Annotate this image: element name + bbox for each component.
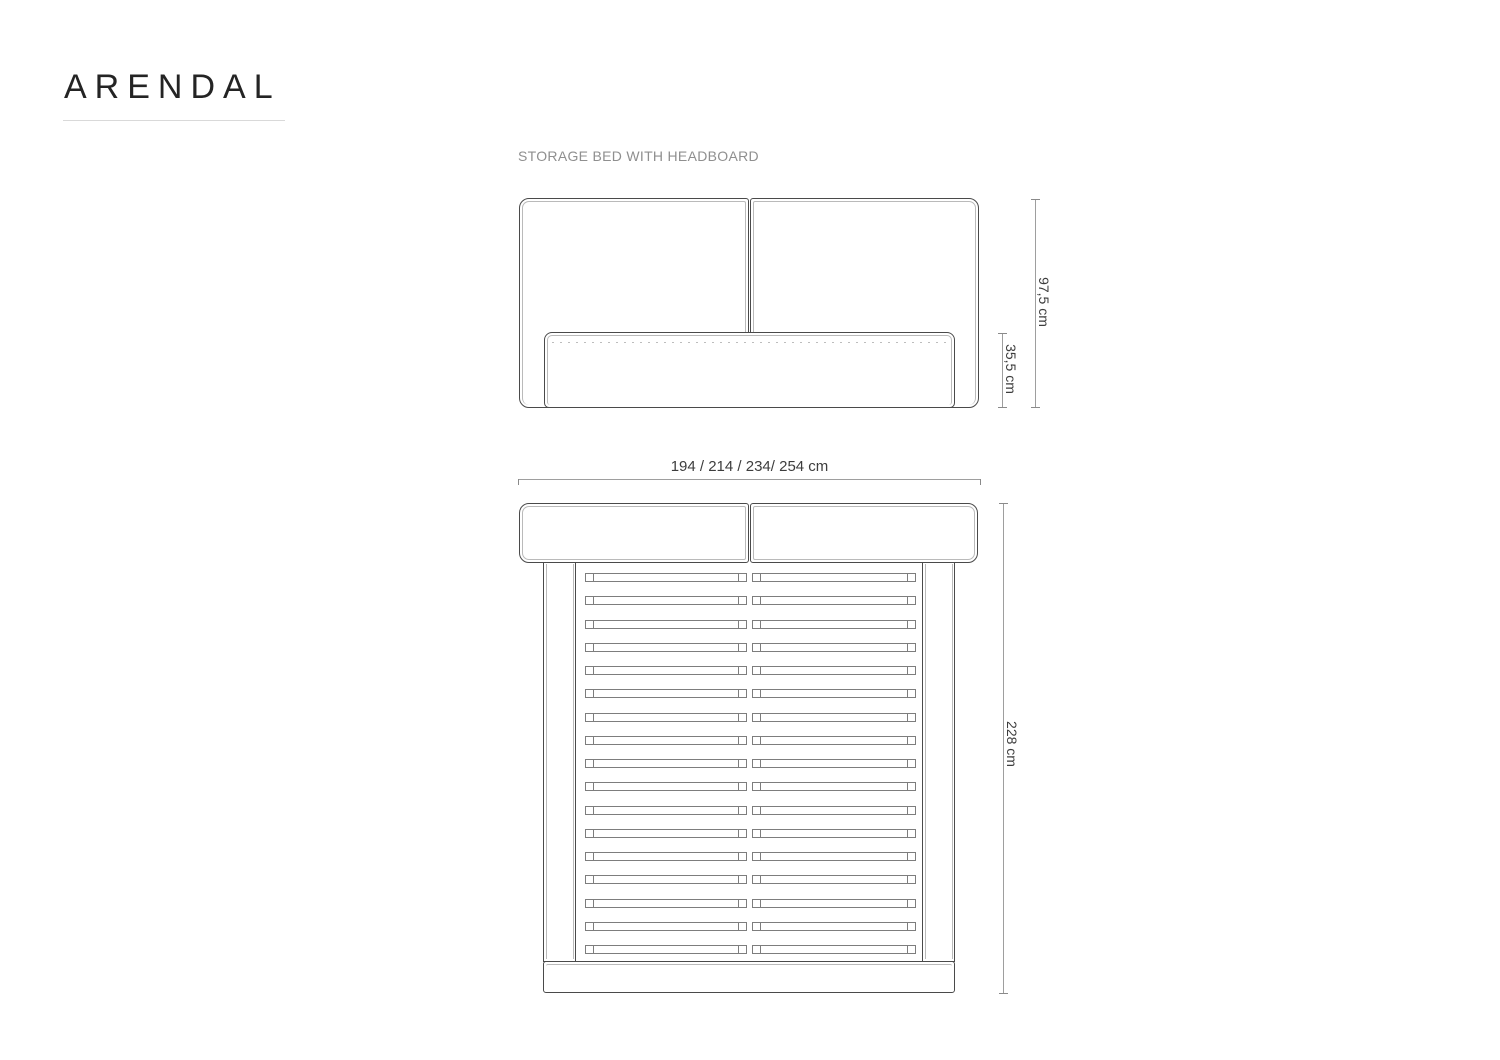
slat <box>585 875 747 884</box>
slat <box>585 899 747 908</box>
footboard-inner-edge <box>546 964 952 990</box>
product-title: ARENDAL <box>64 68 281 107</box>
slat-row <box>585 922 916 931</box>
side-rail-left <box>543 561 576 962</box>
slat <box>752 573 916 582</box>
slat <box>752 666 916 675</box>
slat <box>585 620 747 629</box>
spec-sheet-page: ARENDAL STORAGE BED WITH HEADBOARD 97,5 … <box>0 0 1500 1060</box>
slat-grid <box>585 573 916 954</box>
slat <box>585 806 747 815</box>
slat <box>585 689 747 698</box>
slat <box>585 829 747 838</box>
dim-tick <box>1031 407 1040 408</box>
slat <box>585 922 747 931</box>
slat <box>752 945 916 954</box>
slat <box>752 922 916 931</box>
side-rail-right <box>922 561 955 962</box>
slat <box>752 782 916 791</box>
slat-row <box>585 573 916 582</box>
dim-tick <box>518 479 519 485</box>
slat-row <box>585 689 916 698</box>
slat-row <box>585 666 916 675</box>
slat <box>752 759 916 768</box>
slat-row <box>585 829 916 838</box>
slat <box>752 899 916 908</box>
dim-label-base-height: 35,5 cm <box>1003 344 1019 394</box>
dim-line-width <box>518 479 981 480</box>
dim-tick <box>999 503 1008 504</box>
dim-tick <box>998 407 1007 408</box>
headboard-top-left-panel <box>519 503 749 563</box>
slat <box>752 643 916 652</box>
headboard-top-right-inner-edge <box>753 506 975 560</box>
base-panel-stitch-line <box>552 342 947 343</box>
slat <box>585 852 747 861</box>
headboard-top-left-inner-edge <box>522 506 746 560</box>
slat <box>752 875 916 884</box>
dim-label-length: 228 cm <box>1004 721 1020 767</box>
slat <box>752 713 916 722</box>
headboard-top-right-panel <box>750 503 978 563</box>
slat <box>585 782 747 791</box>
base-panel-inner-edge <box>547 335 952 405</box>
slat-row <box>585 945 916 954</box>
slat-row <box>585 782 916 791</box>
slat <box>752 689 916 698</box>
slat-row <box>585 736 916 745</box>
slat-row <box>585 759 916 768</box>
slat-row <box>585 643 916 652</box>
dim-label-width-options: 194 / 214 / 234/ 254 cm <box>518 458 981 475</box>
slat-row <box>585 852 916 861</box>
slat-row <box>585 596 916 605</box>
slat-row <box>585 620 916 629</box>
storage-base-front-panel <box>544 332 955 408</box>
slat-row <box>585 899 916 908</box>
footboard <box>543 961 955 993</box>
title-underline <box>63 120 285 121</box>
rail-right-inner-edge <box>925 564 953 959</box>
dim-tick <box>980 479 981 485</box>
dim-label-total-height: 97,5 cm <box>1036 277 1052 327</box>
slat <box>752 829 916 838</box>
product-subtitle: STORAGE BED WITH HEADBOARD <box>518 148 759 164</box>
dim-tick <box>999 993 1008 994</box>
dim-tick <box>998 333 1007 334</box>
slat <box>585 945 747 954</box>
slat <box>752 806 916 815</box>
slat-row <box>585 875 916 884</box>
dim-tick <box>1031 199 1040 200</box>
slat <box>585 759 747 768</box>
rail-left-inner-edge <box>546 564 574 959</box>
slat-row <box>585 713 916 722</box>
slat <box>752 852 916 861</box>
slat <box>752 736 916 745</box>
slat <box>752 596 916 605</box>
slat <box>585 573 747 582</box>
slat <box>585 736 747 745</box>
slat-row <box>585 806 916 815</box>
slat <box>585 596 747 605</box>
slat <box>585 666 747 675</box>
slat <box>585 643 747 652</box>
slat <box>585 713 747 722</box>
slat <box>752 620 916 629</box>
